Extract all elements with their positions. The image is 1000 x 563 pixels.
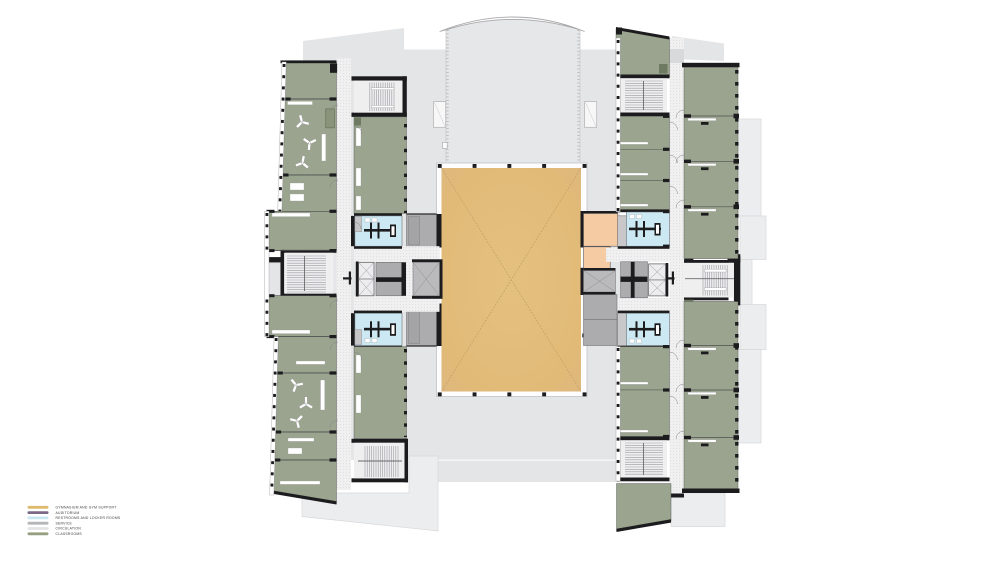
svg-text:GYMNASIUM AND GYM SUPPORT: GYMNASIUM AND GYM SUPPORT [56, 506, 117, 510]
svg-text:CLASSROOMS: CLASSROOMS [56, 532, 83, 536]
svg-text:SERVICE: SERVICE [56, 521, 73, 525]
svg-text:RESTROOMS AND LOCKER ROOMS: RESTROOMS AND LOCKER ROOMS [56, 516, 121, 520]
svg-text:AUDITORIUM: AUDITORIUM [56, 511, 80, 515]
svg-text:CIRCULATION: CIRCULATION [56, 527, 82, 531]
